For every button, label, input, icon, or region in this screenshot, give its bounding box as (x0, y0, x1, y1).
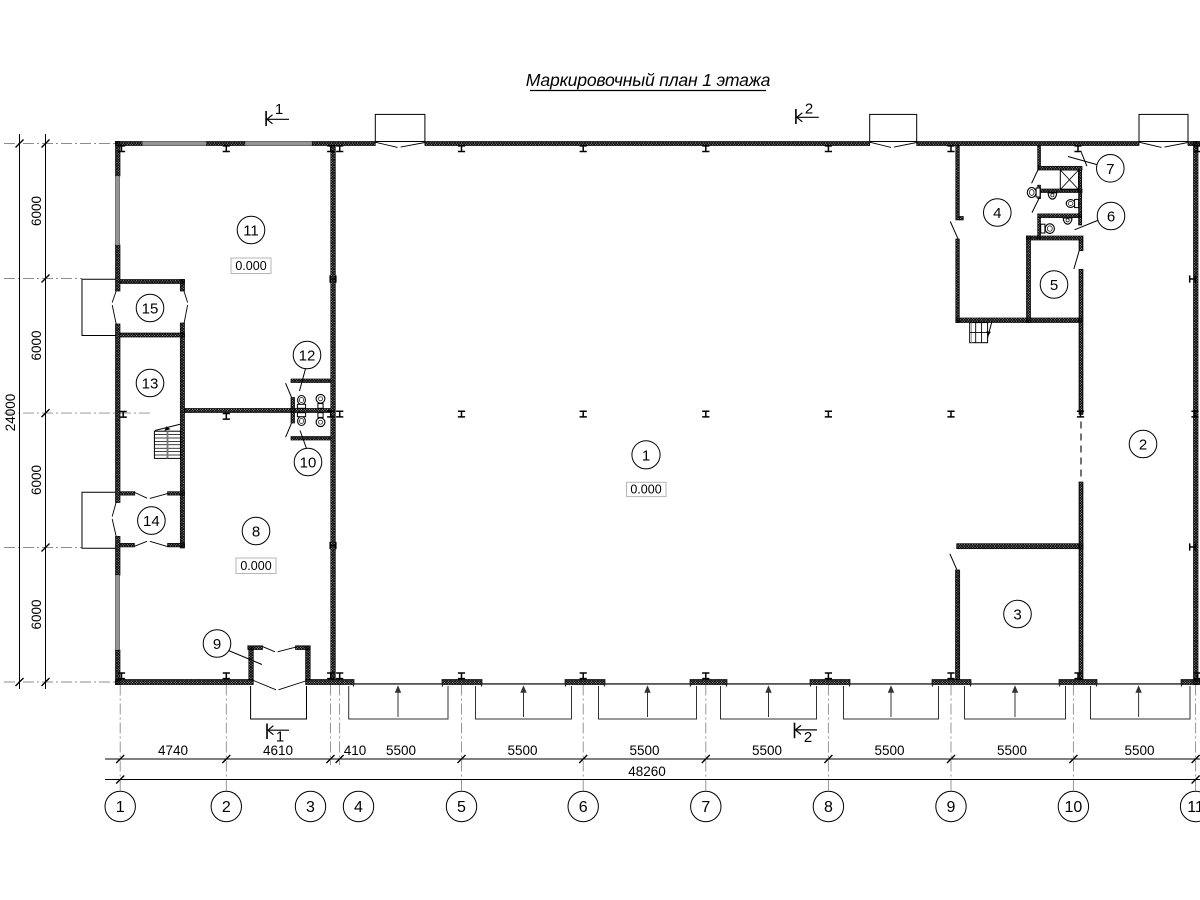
svg-text:0.000: 0.000 (630, 483, 661, 497)
svg-text:6: 6 (1107, 209, 1115, 226)
svg-text:1: 1 (276, 729, 284, 746)
svg-text:2: 2 (222, 799, 231, 816)
svg-text:4740: 4740 (158, 743, 188, 758)
svg-text:2: 2 (804, 729, 812, 746)
svg-text:5500: 5500 (1124, 743, 1154, 758)
svg-text:6000: 6000 (29, 465, 44, 495)
svg-text:5500: 5500 (752, 743, 782, 758)
svg-text:5500: 5500 (997, 743, 1027, 758)
svg-text:4: 4 (354, 799, 363, 816)
svg-text:3: 3 (306, 799, 315, 816)
svg-text:7: 7 (1106, 161, 1114, 178)
svg-text:24000: 24000 (3, 394, 18, 432)
svg-text:5500: 5500 (507, 743, 537, 758)
svg-text:1: 1 (116, 799, 125, 816)
svg-text:10: 10 (1065, 799, 1083, 816)
svg-text:410: 410 (344, 743, 367, 758)
svg-text:5: 5 (1050, 277, 1058, 294)
svg-text:8: 8 (252, 524, 260, 541)
svg-text:3: 3 (1013, 607, 1021, 624)
svg-text:6000: 6000 (29, 330, 44, 360)
svg-text:8: 8 (824, 799, 833, 816)
svg-text:2: 2 (1139, 437, 1147, 454)
svg-text:1: 1 (275, 101, 283, 118)
svg-text:11: 11 (1187, 799, 1200, 816)
svg-text:4: 4 (993, 205, 1001, 222)
svg-text:7: 7 (701, 799, 710, 816)
svg-text:9: 9 (947, 799, 956, 816)
svg-text:5: 5 (457, 799, 466, 816)
svg-text:5500: 5500 (629, 743, 659, 758)
svg-text:2: 2 (805, 101, 813, 118)
svg-text:5500: 5500 (874, 743, 904, 758)
svg-text:12: 12 (299, 348, 316, 365)
svg-text:15: 15 (142, 301, 159, 318)
svg-text:10: 10 (300, 455, 317, 472)
svg-text:Маркировочный план 1 этажа: Маркировочный план 1 этажа (526, 70, 771, 90)
svg-text:0.000: 0.000 (240, 559, 271, 573)
svg-text:6000: 6000 (29, 196, 44, 226)
svg-text:48260: 48260 (628, 764, 666, 779)
svg-text:9: 9 (213, 636, 221, 653)
svg-text:1: 1 (642, 447, 650, 464)
svg-text:0.000: 0.000 (235, 259, 266, 273)
svg-text:6: 6 (579, 799, 588, 816)
svg-text:5500: 5500 (386, 743, 416, 758)
svg-text:14: 14 (143, 513, 160, 530)
svg-text:13: 13 (142, 376, 159, 393)
svg-text:6000: 6000 (29, 599, 44, 629)
svg-text:11: 11 (243, 223, 259, 240)
